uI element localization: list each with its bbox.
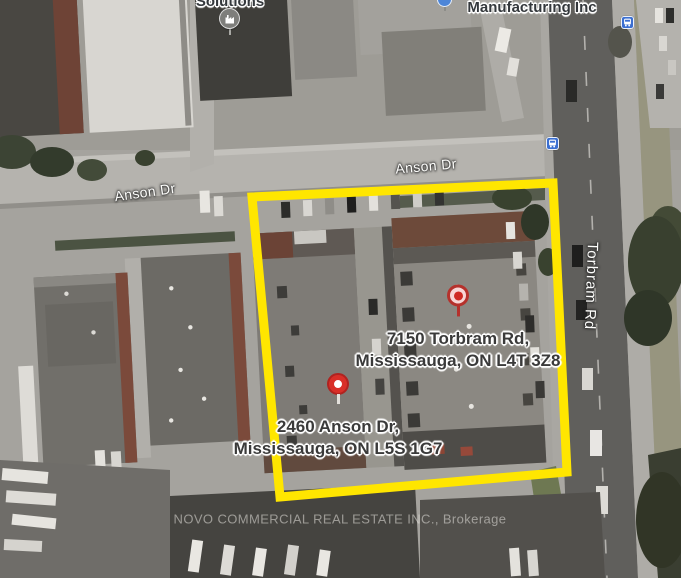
manufacturing-poi-icon-stem [444, 7, 446, 11]
pin-stem [457, 305, 460, 316]
pin-head [327, 373, 349, 395]
marker-address-label: 2460 Anson Dr, Mississauga, ON L5S 1G7 [234, 416, 443, 460]
address-line1: 2460 Anson Dr, [234, 416, 443, 438]
marker-address-label: 7150 Torbram Rd, Mississauga, ON L4T 3Z8 [355, 328, 560, 372]
pin-head [447, 284, 469, 306]
factory-glyph [224, 13, 236, 25]
bus-stop-icon[interactable] [546, 137, 559, 150]
pin-stem [337, 394, 340, 404]
bus-glyph [622, 17, 633, 28]
address-line2: Mississauga, ON L5S 1G7 [234, 438, 443, 460]
satellite-map[interactable]: Solutions Manufacturing Inc Anson Dr Ans… [0, 0, 681, 578]
pin-dot [334, 380, 342, 388]
address-line1: 7150 Torbram Rd, [355, 328, 560, 350]
poi-label-manufacturing-inc: Manufacturing Inc [467, 0, 596, 16]
brokerage-watermark: NOVO COMMERCIAL REAL ESTATE INC., Broker… [174, 512, 507, 527]
road-label-torbram-rd: Torbram Rd [581, 242, 601, 331]
bus-stop-icon[interactable] [621, 16, 634, 29]
map-pin-icon[interactable] [447, 284, 469, 316]
satellite-basemap [0, 0, 681, 578]
address-line2: Mississauga, ON L4T 3Z8 [355, 350, 560, 372]
factory-icon-stem [229, 29, 231, 35]
map-pin-icon[interactable] [327, 373, 349, 404]
pin-dot [454, 291, 463, 300]
bus-glyph [547, 138, 558, 149]
factory-icon[interactable] [219, 8, 240, 29]
